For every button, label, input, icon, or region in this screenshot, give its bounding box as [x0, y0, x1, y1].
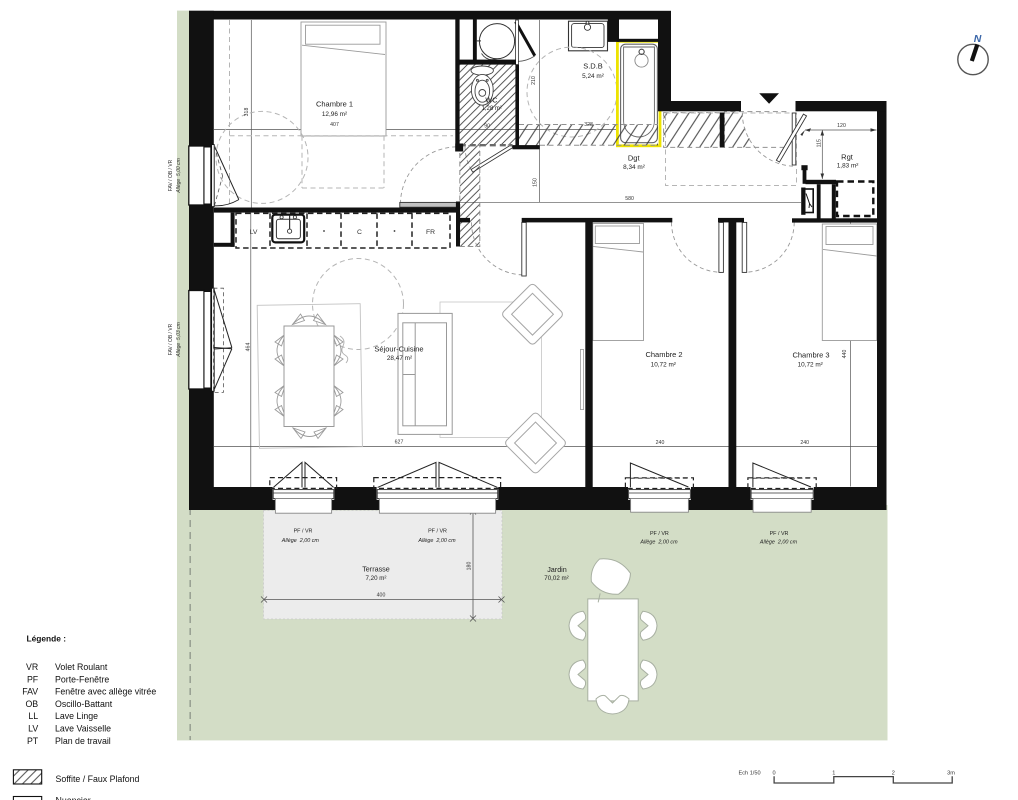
- svg-text:5,24 m²: 5,24 m²: [582, 73, 604, 80]
- svg-text:400: 400: [377, 593, 386, 599]
- svg-text:FAV / OB / VR: FAV / OB / VR: [168, 323, 174, 355]
- svg-text:440: 440: [842, 350, 848, 359]
- svg-text:Lave Vaisselle: Lave Vaisselle: [55, 724, 111, 734]
- svg-text:Volet Roulant: Volet Roulant: [55, 662, 108, 672]
- svg-text:C: C: [357, 229, 362, 236]
- svg-text:1: 1: [832, 770, 835, 776]
- svg-text:Nuancier: Nuancier: [56, 796, 91, 800]
- svg-text:PT: PT: [27, 736, 39, 746]
- svg-text:Allège 2,00 cm: Allège 2,00 cm: [281, 538, 320, 544]
- svg-text:12,96 m²: 12,96 m²: [322, 111, 347, 118]
- svg-text:Légende :: Légende :: [27, 633, 67, 643]
- svg-text:464: 464: [245, 343, 251, 352]
- svg-text:Allège 5,03 cm: Allège 5,03 cm: [176, 322, 182, 357]
- svg-text:LV: LV: [28, 724, 38, 734]
- svg-text:Soffite / Faux Plafond: Soffite / Faux Plafond: [56, 774, 140, 784]
- svg-text:1,83 m²: 1,83 m²: [837, 162, 859, 169]
- svg-text:Dgt: Dgt: [628, 153, 641, 162]
- svg-text:FR: FR: [426, 229, 435, 236]
- svg-text:LV: LV: [250, 229, 258, 236]
- svg-text:Allège 2,00 cm: Allège 2,00 cm: [639, 540, 678, 546]
- svg-text:Lave Linge: Lave Linge: [55, 711, 98, 721]
- svg-text:115: 115: [817, 139, 823, 147]
- svg-text:Chambre 3: Chambre 3: [792, 350, 829, 359]
- svg-text:WC: WC: [485, 96, 497, 105]
- svg-text:150: 150: [532, 178, 538, 187]
- svg-text:3m: 3m: [947, 770, 955, 776]
- svg-text:PF / VR: PF / VR: [650, 531, 669, 537]
- svg-text:90: 90: [484, 123, 490, 129]
- svg-text:7,20 m²: 7,20 m²: [366, 575, 387, 582]
- svg-text:180: 180: [467, 562, 473, 571]
- svg-text:LL: LL: [28, 711, 38, 721]
- svg-text:Plan de travail: Plan de travail: [55, 736, 111, 746]
- svg-text:FAV: FAV: [22, 686, 38, 696]
- svg-text:407: 407: [330, 122, 339, 128]
- svg-text:VR: VR: [26, 662, 38, 672]
- svg-text:Rgt: Rgt: [841, 153, 854, 162]
- svg-text:Allège 5,00 cm: Allège 5,00 cm: [176, 158, 182, 193]
- svg-text:240: 240: [800, 440, 809, 446]
- svg-text:PF / VR: PF / VR: [428, 529, 447, 535]
- svg-text:210: 210: [531, 76, 537, 85]
- svg-text:328: 328: [584, 122, 593, 128]
- svg-text:0: 0: [772, 770, 775, 776]
- svg-text:70,02 m²: 70,02 m²: [544, 575, 568, 582]
- svg-text:Fenêtre avec allège vitrée: Fenêtre avec allège vitrée: [55, 686, 156, 696]
- svg-text:120: 120: [837, 123, 846, 129]
- svg-text:Porte-Fenêtre: Porte-Fenêtre: [55, 674, 109, 684]
- svg-text:Chambre 2: Chambre 2: [645, 350, 682, 359]
- svg-text:FAV / OB / VR: FAV / OB / VR: [168, 159, 174, 191]
- svg-text:Allège 2,00 cm: Allège 2,00 cm: [417, 538, 456, 544]
- svg-text:10,72 m²: 10,72 m²: [651, 361, 676, 368]
- svg-text:PF: PF: [27, 674, 39, 684]
- svg-text:Ech 1/50: Ech 1/50: [739, 770, 761, 776]
- svg-text:2: 2: [892, 770, 895, 776]
- svg-text:28,47 m²: 28,47 m²: [387, 355, 412, 362]
- svg-text:Oscillo-Battant: Oscillo-Battant: [55, 699, 113, 709]
- svg-text:580: 580: [625, 196, 634, 202]
- svg-text:OB: OB: [25, 699, 38, 709]
- svg-text:627: 627: [395, 440, 404, 446]
- svg-text:1,28 m²: 1,28 m²: [482, 106, 502, 112]
- svg-text:S.D.B: S.D.B: [583, 61, 603, 70]
- svg-text:240: 240: [656, 440, 665, 446]
- svg-text:8,34 m²: 8,34 m²: [623, 164, 645, 171]
- svg-text:10,72 m²: 10,72 m²: [798, 362, 823, 369]
- svg-text:PF / VR: PF / VR: [770, 531, 789, 537]
- svg-text:318: 318: [244, 108, 250, 117]
- svg-text:Terrasse: Terrasse: [362, 565, 390, 574]
- svg-text:Jardin: Jardin: [547, 565, 567, 574]
- svg-text:N: N: [974, 33, 982, 45]
- svg-text:Chambre 1: Chambre 1: [316, 99, 353, 108]
- svg-text:PF / VR: PF / VR: [294, 529, 313, 535]
- svg-text:Allège 2,00 cm: Allège 2,00 cm: [759, 540, 798, 546]
- svg-text:Séjour-Cuisine: Séjour-Cuisine: [374, 344, 423, 353]
